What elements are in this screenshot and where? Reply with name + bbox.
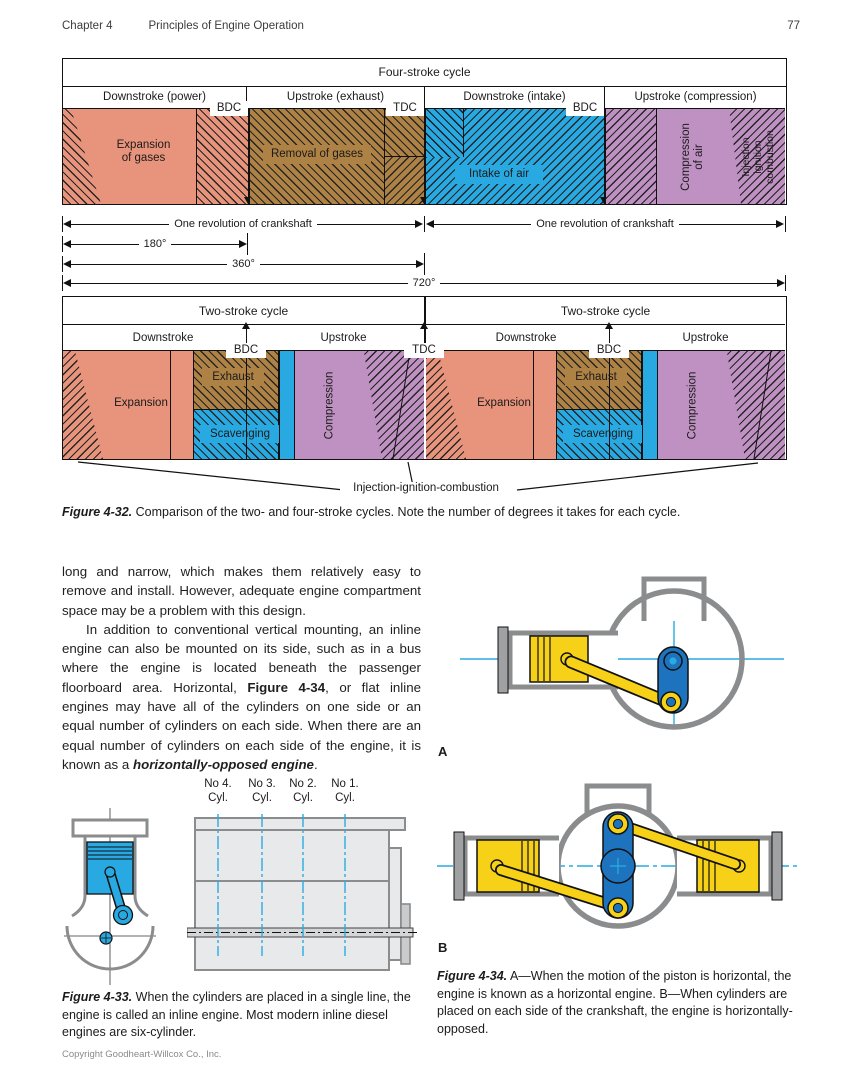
cyl-no: No 4. — [195, 778, 241, 792]
chapter-number: Chapter 4 — [62, 20, 113, 32]
valve-cover-rail — [195, 818, 405, 830]
cyl-word: Cyl. — [239, 792, 285, 806]
opposed-engine-drawing — [437, 778, 799, 950]
cylinder-label-1: No 1. Cyl. — [322, 778, 368, 805]
line — [679, 224, 776, 225]
arrowhead — [777, 279, 785, 287]
arrowhead — [63, 240, 71, 248]
upstroke-header: Upstroke — [263, 326, 424, 350]
expansion-label: Expansion — [101, 395, 181, 411]
figure-reference: Figure 4-34 — [247, 680, 325, 695]
cyl-word: Cyl. — [195, 792, 241, 806]
blue-port-strip — [642, 351, 658, 459]
cylinder-label-3: No 3. Cyl. — [239, 778, 285, 805]
crank-degree-scale: One revolution of crankshaft One revolut… — [62, 205, 787, 296]
line — [317, 224, 415, 225]
bdc-label-1: BDC — [210, 101, 248, 116]
arrowhead — [415, 220, 423, 228]
left-end-cap — [454, 832, 464, 900]
wrist-pin — [105, 867, 115, 877]
crank-pin — [119, 911, 128, 920]
intake-upper-hatch — [426, 109, 464, 157]
blue-port-strip — [279, 351, 295, 459]
two-stroke-title: Two-stroke cycle — [426, 297, 785, 325]
scavenging-label: Scavenging — [200, 425, 280, 443]
chapter-title: Principles of Engine Operation — [149, 20, 304, 32]
one-revolution-label: One revolution of crankshaft — [169, 218, 317, 230]
tick — [424, 253, 425, 275]
paragraph-1: long and narrow, which makes them relati… — [62, 562, 421, 620]
engine-block-drawing — [187, 814, 420, 979]
line — [440, 283, 777, 284]
expansion-label: Expansion of gases — [91, 137, 196, 167]
top-crank-pin — [613, 819, 622, 828]
cyl-word: Cyl. — [280, 792, 326, 806]
deg-360-arrow: 360° — [63, 257, 424, 271]
line — [171, 244, 239, 245]
figure-part-a-label: A — [438, 744, 447, 759]
cyl-no: No 3. — [239, 778, 285, 792]
paragraph-2: In addition to conventional vertical mou… — [62, 620, 421, 774]
crank-pin — [666, 697, 675, 706]
exhaust-lower-hatch — [385, 157, 424, 205]
col-upstroke-compression: Upstroke (compression) — [604, 87, 786, 108]
line — [260, 264, 416, 265]
figure-4-32: Four-stroke cycle Downstroke (power) Ups… — [62, 58, 787, 528]
leader-left — [78, 462, 344, 490]
one-revolution-arrow-right: One revolution of crankshaft — [426, 217, 784, 231]
compression-label-wrap: Compression of air — [660, 109, 726, 204]
two-stroke-title: Two-stroke cycle — [63, 297, 424, 325]
line — [71, 283, 408, 284]
figure-part-b-label: B — [438, 940, 447, 955]
cylinder-label-4: No 4. Cyl. — [195, 778, 241, 805]
injection-label-wrap: Injection ignition combustion — [731, 109, 785, 204]
bdc-label: BDC — [589, 343, 629, 358]
cyl-no: No 1. — [322, 778, 368, 792]
one-revolution-arrow-left: One revolution of crankshaft — [63, 217, 423, 231]
four-stroke-chart: Four-stroke cycle Downstroke (power) Ups… — [62, 58, 787, 205]
figure-4-33: No 4. Cyl. No 3. Cyl. No 2. Cyl. No 1. C… — [62, 778, 420, 985]
figure-4-34-caption: Figure 4-34. A—When the motion of the pi… — [437, 968, 799, 1038]
deg-180-arrow: 180° — [63, 237, 247, 251]
line — [71, 264, 227, 265]
compression-label-wrap: Compression — [662, 351, 724, 459]
tick — [785, 216, 786, 232]
divider — [170, 351, 171, 459]
caption-label: Figure 4-33. — [62, 990, 132, 1004]
cylinder-wall-right — [135, 836, 148, 916]
exhaust-label: Exhaust — [202, 368, 264, 386]
caption-label: Figure 4-32. — [62, 505, 132, 519]
compression-label: Compression — [687, 371, 700, 439]
injection-label: Injection ignition combustion — [740, 130, 776, 184]
exhaust-upper-hatch — [385, 109, 424, 157]
bdc-up-arrow — [246, 328, 247, 343]
leader-right — [517, 463, 758, 490]
bdc-internal-line — [609, 351, 610, 459]
intake-label: Intake of air — [455, 165, 543, 184]
four-stroke-title: Four-stroke cycle — [63, 59, 786, 87]
compression-label-wrap: Compression — [299, 351, 361, 459]
arrowhead — [416, 260, 424, 268]
bdc-label: BDC — [226, 343, 266, 358]
deg-360-label: 360° — [227, 258, 260, 270]
deg-720-arrow: 720° — [63, 276, 785, 290]
tick — [247, 233, 248, 255]
rear-housing — [389, 848, 401, 960]
scavenging-label: Scavenging — [563, 425, 643, 443]
power-hatch-trail — [197, 109, 248, 204]
page-number: 77 — [787, 20, 800, 32]
arrowhead — [239, 240, 247, 248]
body-text: long and narrow, which makes them relati… — [62, 562, 421, 774]
figure-4-32-caption: Figure 4-32. Comparison of the two- and … — [62, 504, 787, 522]
two-stroke-half-right: Two-stroke cycle Downstroke Upstroke Exp… — [426, 297, 785, 458]
crank-main-center — [669, 657, 676, 664]
tick — [785, 275, 786, 291]
upstroke-header: Upstroke — [626, 326, 785, 350]
injection-callout: Injection-ignition-combustion — [340, 482, 512, 494]
cylinder-wall-left — [72, 836, 85, 916]
bdc-label-2: BDC — [566, 101, 604, 116]
line — [71, 224, 169, 225]
bdc-up-arrow — [609, 328, 610, 343]
cylinder-head — [73, 820, 147, 836]
tdc-up-arrow — [424, 328, 425, 343]
horizontal-engine-drawing — [452, 563, 792, 743]
two-stroke-half-left: Two-stroke cycle Downstroke Upstroke Exp… — [63, 297, 424, 458]
cylinder-end-cap — [498, 627, 508, 693]
copyright-line: Copyright Goodheart-Willcox Co., Inc. — [62, 1049, 221, 1060]
arrowhead — [63, 220, 71, 228]
removal-label: Removal of gases — [263, 145, 371, 164]
one-revolution-label: One revolution of crankshaft — [531, 218, 679, 230]
line — [434, 224, 531, 225]
figure-4-33-caption: Figure 4-33. When the cylinders are plac… — [62, 989, 421, 1042]
cyl-word: Cyl. — [322, 792, 368, 806]
divider — [656, 109, 657, 204]
two-stroke-band: Expansion Exhaust Scavenging Compression — [426, 350, 785, 459]
compression-label: Compression — [324, 371, 337, 439]
compression-label: Compression of air — [680, 123, 706, 191]
tdc-label: TDC — [404, 343, 444, 358]
engine-block — [195, 830, 389, 970]
two-stroke-band: Expansion Exhaust Scavenging Compression — [63, 350, 424, 459]
caption-label: Figure 4-34. — [437, 969, 507, 983]
arrowhead — [776, 220, 784, 228]
bottom-crank-pin — [613, 903, 622, 912]
bdc-internal-line — [246, 351, 247, 459]
caption-text: Comparison of the two- and four-stroke c… — [132, 505, 680, 519]
exhaust-label: Exhaust — [565, 368, 627, 386]
deg-180-label: 180° — [139, 238, 172, 250]
expansion-label: Expansion — [464, 395, 544, 411]
arrowhead — [426, 220, 434, 228]
line — [71, 244, 139, 245]
two-stroke-chart: Two-stroke cycle Downstroke Upstroke Exp… — [62, 296, 787, 460]
right-end-cap — [772, 832, 782, 900]
arrowhead — [63, 279, 71, 287]
cyl-no: No 2. — [280, 778, 326, 792]
divider — [533, 351, 534, 459]
tdc-label: TDC — [386, 101, 424, 116]
paragraph-2-text: . — [314, 757, 318, 772]
key-term: horizontally-opposed engine — [133, 757, 314, 772]
running-head: Chapter 4Principles of Engine Operation … — [62, 20, 800, 32]
arrowhead — [63, 260, 71, 268]
four-stroke-band: Expansion of gases Removal of gases Inta… — [63, 108, 785, 204]
cylinder-label-2: No 2. Cyl. — [280, 778, 326, 805]
deg-720-label: 720° — [408, 277, 441, 289]
engine-cross-section-drawing — [64, 808, 156, 985]
textbook-page: Chapter 4Principles of Engine Operation … — [0, 0, 849, 1087]
